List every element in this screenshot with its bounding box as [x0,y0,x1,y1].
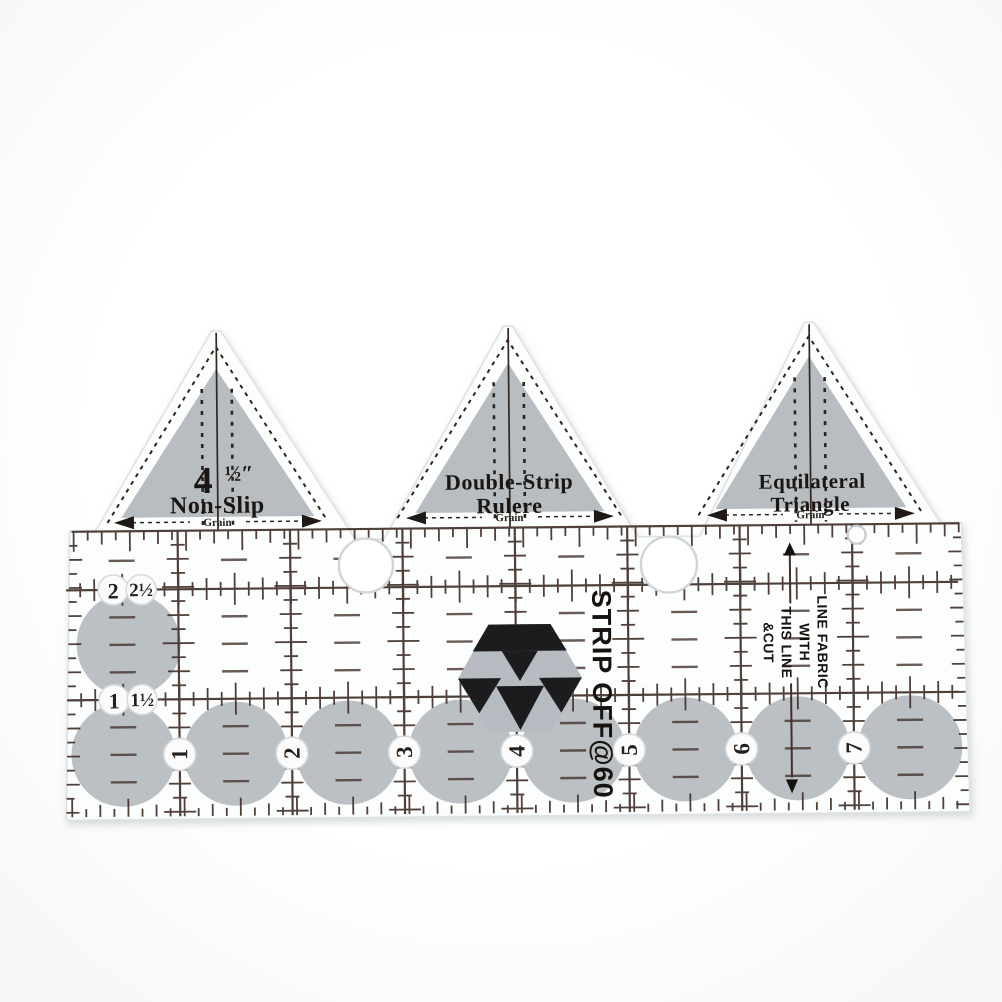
inch-number-2: 2 [280,747,305,759]
notch-hole-right [641,536,698,593]
inch-number-5: 5 [617,744,642,756]
triangle1-size-fraction: ½″ [225,461,254,486]
ruler: Grain Grain Grain 4 ½″ Non-Slip Double-S… [62,321,971,821]
triangle2-name-line2: Rulere [476,493,542,519]
hanging-hole [848,526,866,544]
cut-instruction-line2: WITH [796,623,812,661]
brand-text: STRIP OFF@60 [586,590,618,799]
ruler-svg: Grain Grain Grain 4 ½″ Non-Slip Double-S… [0,0,1002,1002]
product-photo: Grain Grain Grain 4 ½″ Non-Slip Double-S… [0,0,1002,1002]
triangle3-name-line2: Triangle [770,492,850,517]
label-2half: 2½ [129,580,153,601]
label-1: 1 [109,688,120,713]
cut-instruction-line1: LINE FABRIC [814,595,831,689]
label-1half: 1½ [130,690,154,711]
triangle2-name-line1: Double-Strip [445,468,573,494]
inch-number-6: 6 [729,743,754,755]
cut-instruction-line4: &CUT [760,622,776,663]
inch-number-7: 7 [842,742,867,754]
notch-hole-left [339,538,394,593]
triangle1-name: Non-Slip [170,492,265,519]
label-2: 2 [108,578,119,603]
inch-number-4: 4 [504,745,529,757]
triangle3-name-line1: Equilateral [758,469,865,494]
inch-number-3: 3 [392,746,417,758]
inch-number-1: 1 [167,748,192,760]
cut-instruction-line3: THIS LINE [778,606,795,678]
